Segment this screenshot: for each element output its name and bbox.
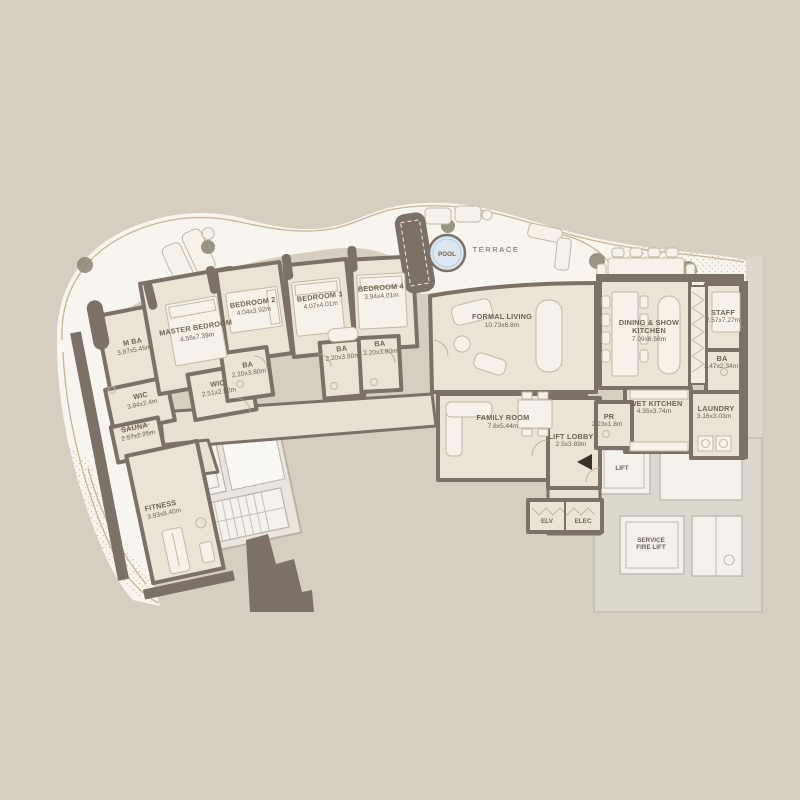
svg-text:2.23x1.8m: 2.23x1.8m <box>592 421 623 428</box>
svg-text:SERVICE: SERVICE <box>637 537 665 544</box>
svg-text:2.57x7.27m: 2.57x7.27m <box>706 317 741 324</box>
svg-text:KITCHEN: KITCHEN <box>632 326 666 335</box>
svg-text:7.8x5.44m: 7.8x5.44m <box>488 423 519 430</box>
floor-plan-svg: POOL TERRACE MASTER BEDROOM 4.58x7.39m B… <box>0 0 800 800</box>
svg-text:PR: PR <box>604 412 615 421</box>
terrace-label: TERRACE <box>473 245 520 254</box>
wall-zigzag-south <box>246 534 314 612</box>
svg-text:10.73x6.8m: 10.73x6.8m <box>485 322 520 329</box>
svg-text:LAUNDRY: LAUNDRY <box>698 404 735 413</box>
svg-text:LIFT LOBBY: LIFT LOBBY <box>549 432 594 441</box>
svg-text:ELV: ELV <box>541 518 554 525</box>
svg-text:BA: BA <box>374 339 386 349</box>
svg-text:2.5x3.89m: 2.5x3.89m <box>556 441 587 448</box>
svg-text:1.47x2.34m: 1.47x2.34m <box>704 363 739 370</box>
pool-label: POOL <box>438 251 456 258</box>
floor-plan-canvas: POOL TERRACE MASTER BEDROOM 4.58x7.39m B… <box>0 0 800 800</box>
svg-text:BA: BA <box>717 354 728 363</box>
room-formal-living <box>430 283 596 392</box>
plant-icon <box>77 257 93 273</box>
svg-text:BA: BA <box>242 359 255 370</box>
svg-text:FAMILY ROOM: FAMILY ROOM <box>477 413 530 422</box>
svg-text:BA: BA <box>336 343 348 353</box>
svg-text:7.09x6.56m: 7.09x6.56m <box>632 336 667 343</box>
svg-text:ELEC: ELEC <box>575 518 592 525</box>
svg-text:FIRE LIFT: FIRE LIFT <box>636 544 666 551</box>
svg-text:FORMAL LIVING: FORMAL LIVING <box>472 312 532 321</box>
svg-text:4.35x3.74m: 4.35x3.74m <box>637 408 672 415</box>
svg-text:WET KITCHEN: WET KITCHEN <box>630 399 683 408</box>
svg-text:3.16x3.03m: 3.16x3.03m <box>697 413 732 420</box>
svg-text:LIFT: LIFT <box>615 465 628 472</box>
svg-text:STAFF: STAFF <box>711 308 735 317</box>
plant-icon <box>201 240 215 254</box>
